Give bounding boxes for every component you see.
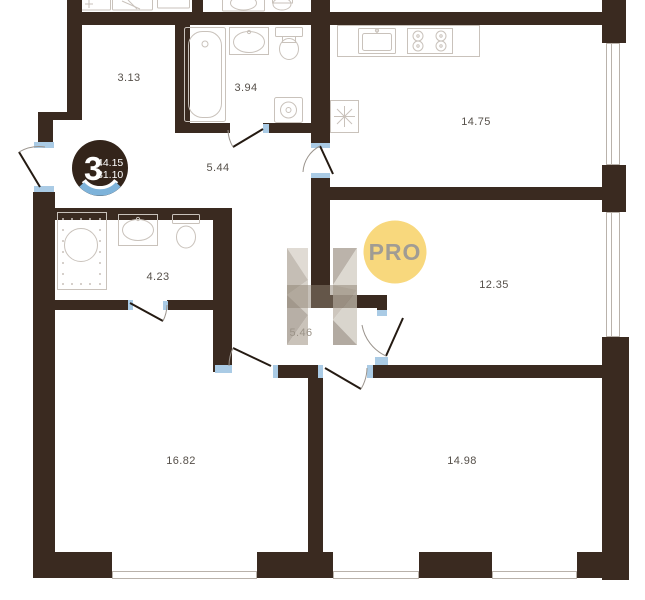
pro-badge: PRO — [364, 221, 427, 284]
badge-upper-value: 44.15 — [97, 157, 123, 169]
kitchen-sink-icon — [359, 29, 396, 54]
bathtub-icon — [185, 28, 226, 122]
room-area-label: 5.46 — [289, 327, 312, 339]
washing-machine-icon — [275, 98, 303, 123]
room-area-label: 5.44 — [206, 162, 229, 174]
badge-lower-value: 81.10 — [97, 169, 123, 181]
room-area-label: 4.23 — [146, 271, 169, 283]
hob-icon — [331, 101, 359, 133]
floorplan-canvas[interactable]: 3.13 3.94 5.44 14.75 4.23 12.35 5.46 16.… — [0, 0, 645, 600]
door-arc — [130, 303, 167, 321]
door-arc — [325, 368, 367, 389]
neighbor-unit-fixtures — [81, 0, 293, 11]
door-arc — [228, 129, 263, 147]
toilet-icon — [276, 28, 303, 60]
room-area-label: 16.82 — [166, 455, 196, 467]
room-area-label: 14.75 — [461, 116, 491, 128]
room-area-label: 14.98 — [447, 455, 477, 467]
room-area-label: 12.35 — [479, 279, 509, 291]
pro-badge-label: PRO — [369, 239, 422, 265]
door-arc — [362, 318, 403, 356]
floorplan-page: 3.13 3.94 5.44 14.75 4.23 12.35 5.46 16.… — [0, 0, 645, 600]
stove-icon — [408, 29, 453, 54]
unit-badge: 3 44.15 81.10 — [72, 140, 128, 196]
shower-icon — [58, 213, 107, 290]
sink-icon — [230, 28, 269, 55]
entrance-door-arc — [19, 147, 45, 187]
room-area-label: 3.94 — [234, 82, 257, 94]
door-arc — [229, 348, 271, 366]
room-area-label: 3.13 — [117, 72, 140, 84]
door-arc — [303, 146, 333, 174]
